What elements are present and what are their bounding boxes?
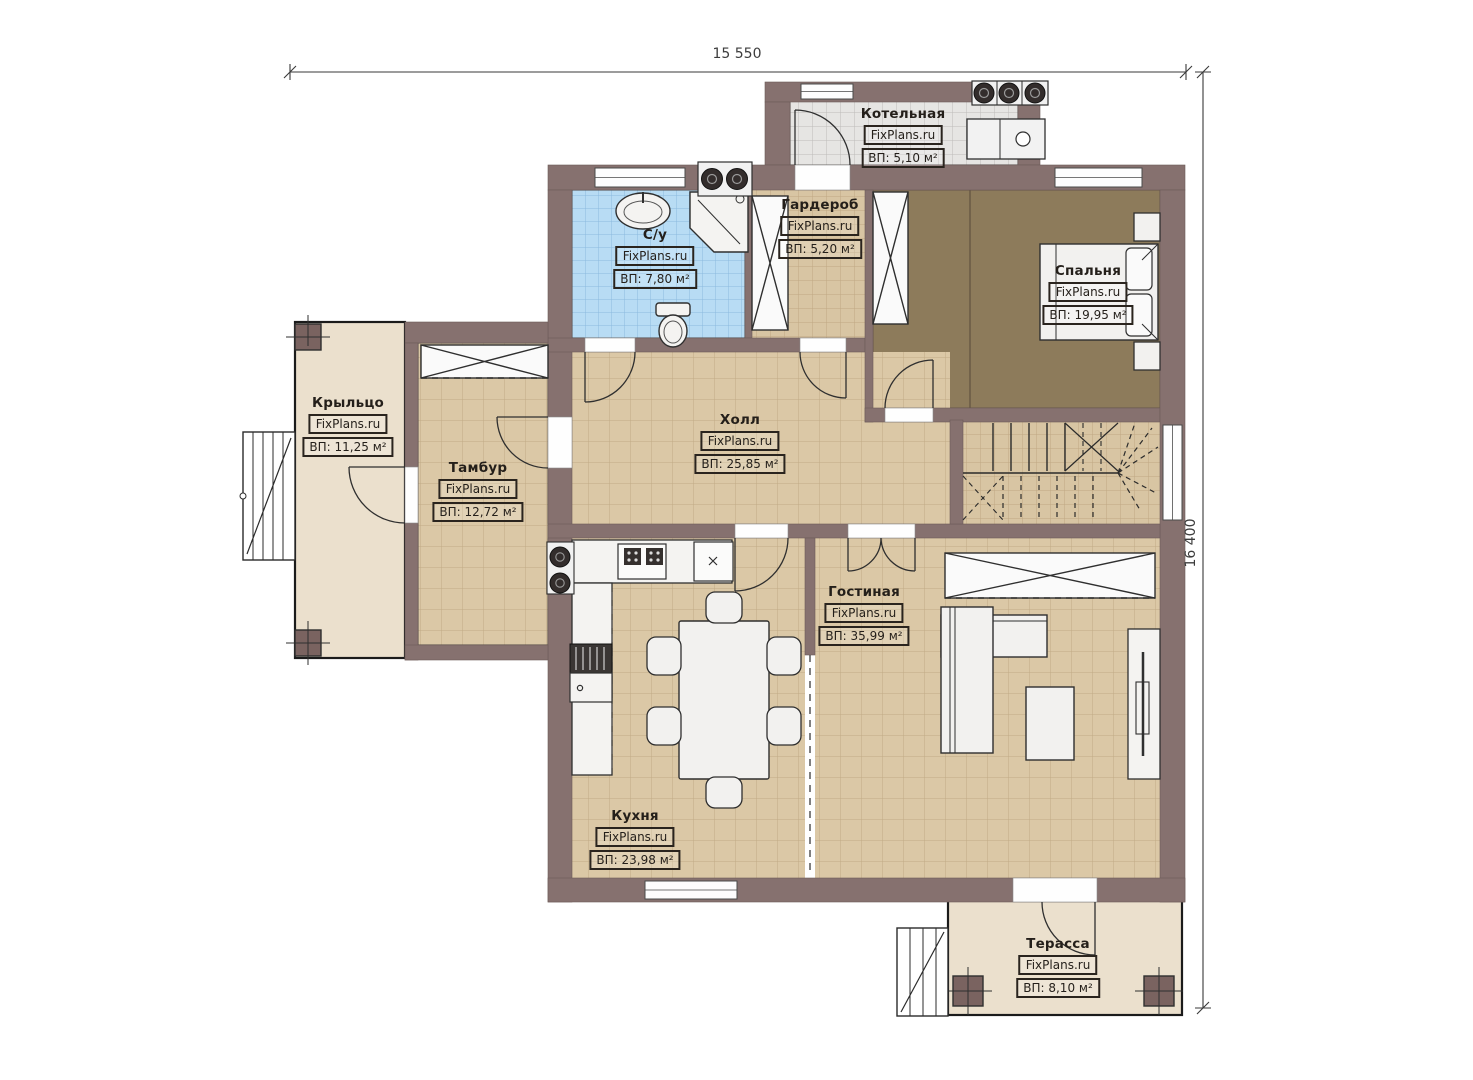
wall — [950, 420, 963, 524]
tv-unit — [1128, 629, 1160, 779]
coffee-table — [1026, 687, 1074, 760]
closet — [421, 345, 548, 378]
dimension-width-label: 15 550 — [713, 46, 762, 62]
closet — [752, 196, 788, 330]
chair — [767, 707, 801, 745]
bed — [1040, 244, 1158, 340]
vestibule-floor — [418, 343, 548, 645]
wall — [765, 102, 790, 165]
floor-plan: Котельная FixPlans.ru ВП: 5,10 м² С/у Fi… — [0, 0, 1473, 1080]
hob-icon — [618, 544, 666, 579]
chair — [767, 637, 801, 675]
living-wardrobe — [945, 553, 1155, 598]
dimension-height-label: 16 400 — [1183, 519, 1199, 568]
chair — [647, 637, 681, 675]
chair — [706, 592, 742, 623]
wall — [865, 190, 873, 422]
nightstand — [1134, 342, 1160, 370]
wall — [805, 538, 815, 655]
boiler-unit — [967, 119, 1045, 159]
terrace-steps — [897, 928, 948, 1016]
wall — [405, 322, 548, 343]
porch-platform — [240, 315, 405, 665]
nightstand — [1134, 213, 1160, 241]
floor-plan-drawing — [0, 0, 1473, 1080]
closet — [873, 192, 908, 324]
wall — [1160, 190, 1185, 902]
appliance-box — [694, 542, 733, 581]
room-floors — [418, 100, 1160, 878]
porch-steps — [240, 432, 295, 560]
kitchen-sink-icon — [570, 644, 612, 702]
wall — [405, 645, 548, 660]
chair — [706, 777, 742, 808]
stove-icon — [547, 542, 574, 594]
toilet-icon — [656, 303, 690, 347]
chair — [647, 707, 681, 745]
terrace-platform — [897, 900, 1183, 1016]
